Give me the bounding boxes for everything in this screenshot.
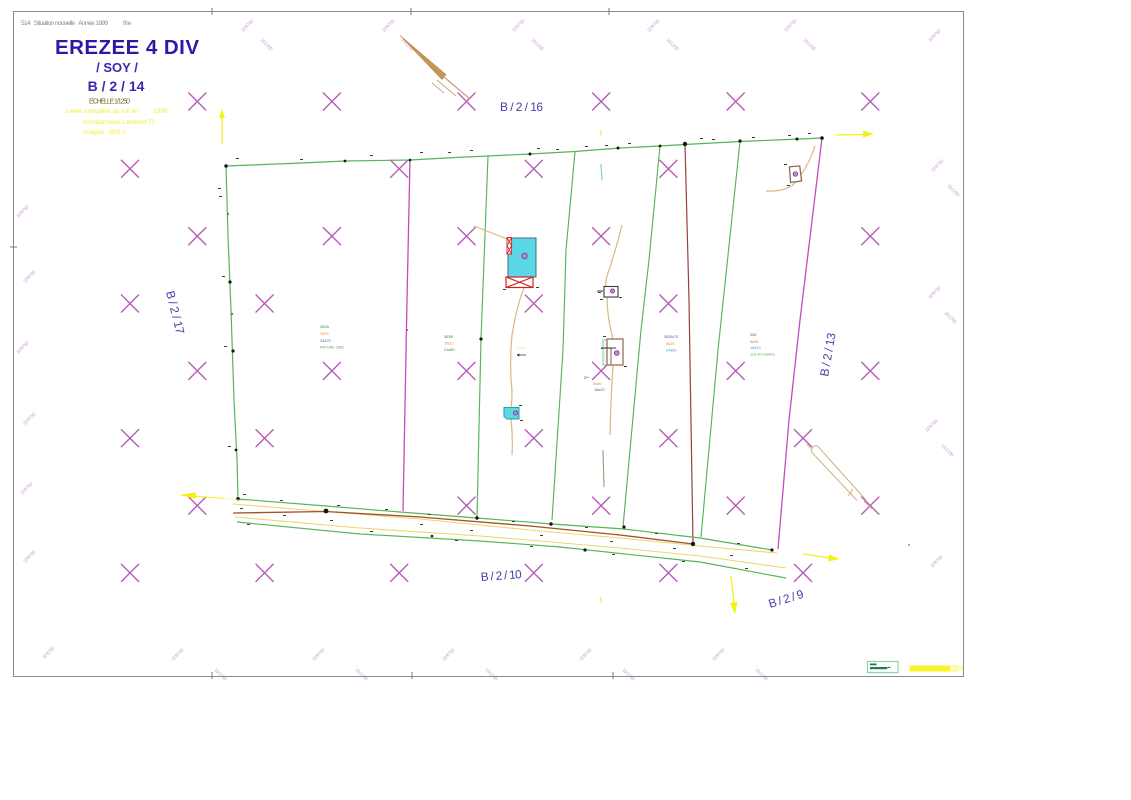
svg-text:ECHELLE 1/1250: ECHELLE 1/1250 [89,99,130,106]
svg-text:B / 2 / 10: B / 2 / 10 [480,567,522,584]
svg-text:EREZEE 4 DIV: EREZEE 4 DIV [55,36,199,59]
svg-text:8a25: 8a25 [750,340,758,344]
svg-text:2**: 2** [584,376,590,380]
svg-text:9a15: 9a15 [666,342,674,346]
svg-text:12a 40 marbre: 12a 40 marbre [750,353,775,357]
svg-text:19a10: 19a10 [750,346,761,350]
svg-text:303B: 303B [444,335,453,339]
svg-text:24a60: 24a60 [666,349,677,353]
svg-text:5a12: 5a12 [445,342,453,346]
svg-text:21a50: 21a50 [444,348,455,352]
svg-text:305A/70: 305A/70 [664,335,678,339]
svg-text:306: 306 [750,333,756,337]
svg-text:PATURE 1850: PATURE 1850 [320,346,344,350]
svg-text:B / 2 / 16: B / 2 / 16 [500,100,543,114]
svg-text:4a95: 4a95 [517,346,525,350]
svg-text:croquis : 850 x: croquis : 850 x [83,129,126,136]
svg-text:302A: 302A [320,325,329,329]
svg-text:/ SOY /: / SOY / [96,60,138,75]
svg-text:B / 2 / 14: B / 2 / 14 [88,78,145,94]
svg-text:18a20: 18a20 [594,388,605,392]
svg-text:514 Situation nouvelle Ann: 514 Situation nouvelle Année 1999 [21,20,108,27]
svg-text:7a70: 7a70 [320,332,328,336]
svg-text:1999: 1999 [153,108,168,115]
svg-text:coordonnées Lambert 72: coordonnées Lambert 72 [83,119,156,126]
svg-text:Lever complété au sol en: Lever complété au sol en [66,108,139,115]
svg-text:file: file [123,20,132,27]
svg-text:6a40: 6a40 [593,382,601,386]
svg-text:33a75: 33a75 [320,339,331,343]
